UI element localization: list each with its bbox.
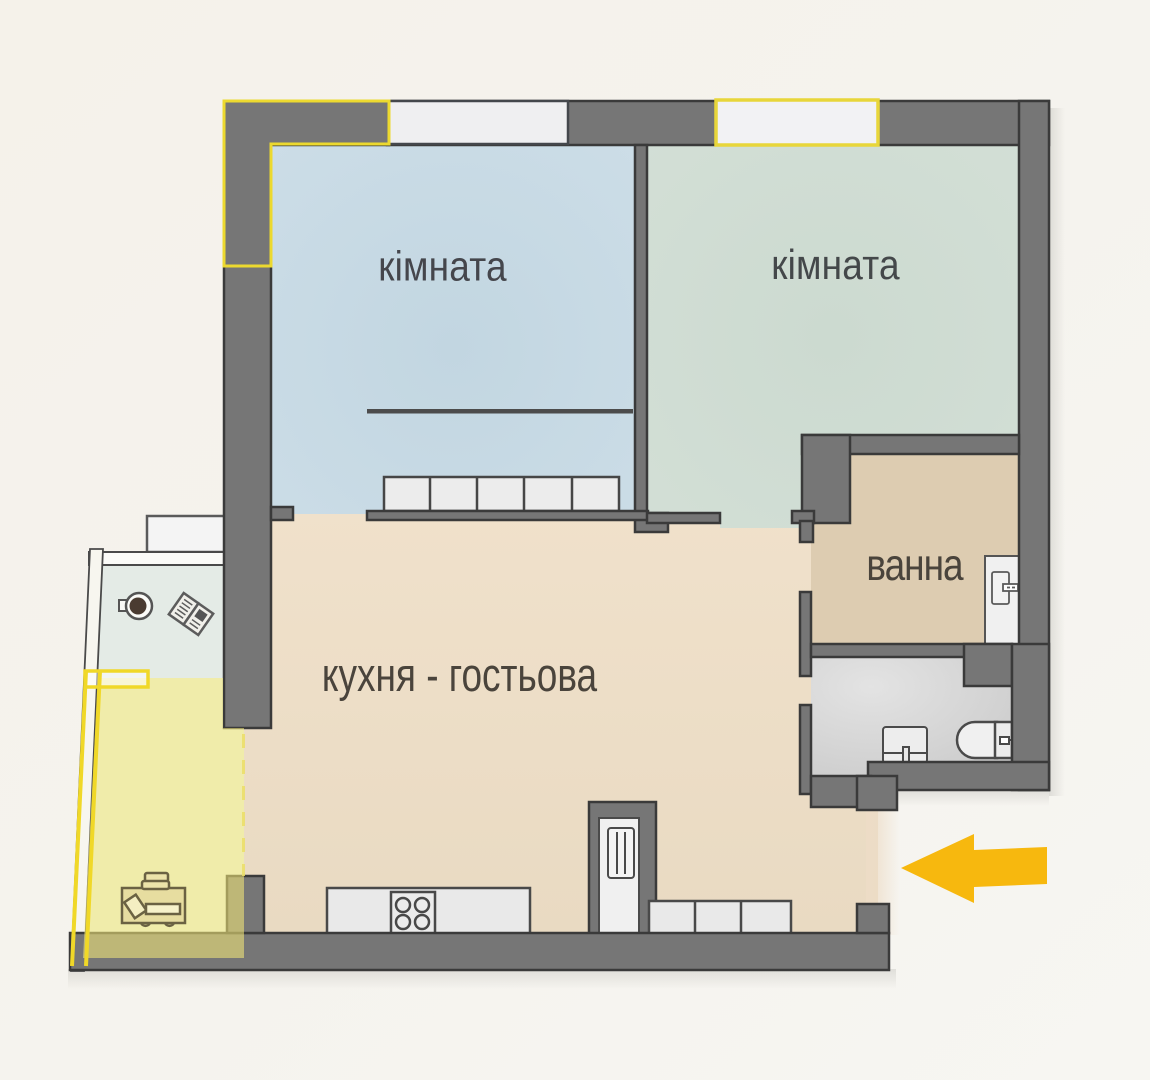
svg-text:кімната: кімната [378,244,507,290]
svg-text:кімната: кімната [771,242,900,288]
svg-text:ванна: ванна [866,540,963,590]
svg-text:кухня - гостьова: кухня - гостьова [322,650,598,702]
